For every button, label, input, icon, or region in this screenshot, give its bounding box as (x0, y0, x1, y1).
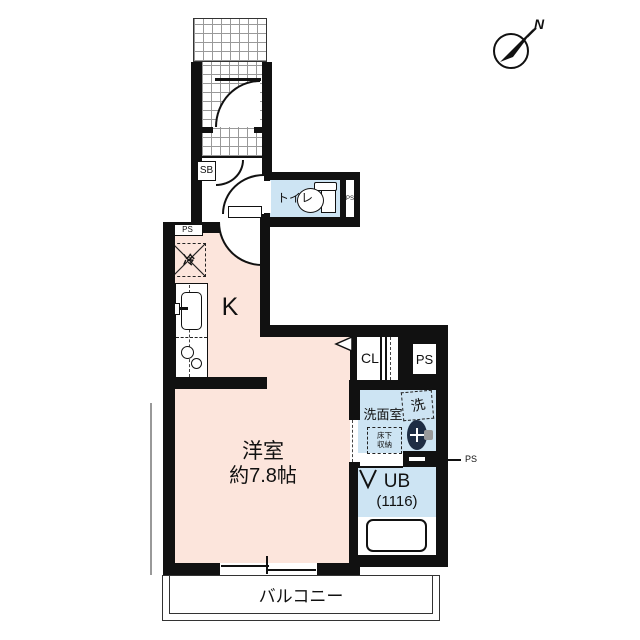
stove-burner-2 (191, 358, 202, 369)
washroom-top-wall (349, 380, 448, 390)
closet-block-top-wall (260, 325, 448, 337)
bath-size-label: (1116) (358, 492, 436, 510)
compass-north-label: N (531, 16, 547, 32)
shoe-box-label: SB (197, 163, 216, 179)
wash-basin-cross-h (410, 434, 424, 436)
bottom-wall-right (317, 563, 360, 575)
floor-storage-label-line1: 床下 (367, 431, 402, 440)
closet-door-swing-triangle-icon (334, 336, 354, 353)
stove-burner-1 (181, 346, 194, 359)
right-outer-wall (436, 325, 448, 567)
kitchen-right-wall (260, 217, 270, 337)
kitchen-label: K (215, 292, 245, 322)
washroom-sliding-door (352, 420, 354, 462)
eave-line (150, 403, 152, 575)
bathtub (366, 519, 427, 552)
toilet-ps-label: PS (342, 194, 358, 203)
bottom-wall-left (163, 563, 220, 575)
washroom-ps-shaft-slit (409, 457, 425, 461)
kitchen-room-divider-wall (163, 377, 267, 389)
balcony-label: バルコニー (180, 586, 422, 606)
bath-label: UB (358, 471, 436, 491)
bath-bottom-wall (349, 555, 448, 567)
entrance-door-stub-right (254, 127, 262, 133)
entrance-door-stub-left (202, 127, 213, 133)
sink-faucet-icon (179, 307, 188, 310)
ps-callout-line (448, 459, 461, 461)
closet-door-line-2 (385, 337, 387, 380)
left-outer-wall (163, 222, 175, 563)
entrance-door-leaf (215, 78, 261, 81)
closet-door-fold-line (390, 337, 391, 380)
pipe-space-label: PS (413, 345, 436, 373)
stove-divider-line (176, 337, 207, 338)
ps-callout-label: PS (461, 453, 481, 465)
main-room-size-label: 約7.8帖 (193, 464, 333, 488)
balcony-window-center-tick (266, 556, 268, 574)
wash-basin-faucet (424, 430, 433, 440)
closet-door-line-1 (380, 337, 382, 380)
balcony-window-pane-1 (221, 565, 269, 567)
floor-plan: PS トイレ SB PS 冷 K CL PS (0, 0, 640, 640)
main-room-label: 洋室 (193, 438, 333, 464)
kitchen-door-leaf (228, 206, 262, 218)
washroom-label: 洗面室 (356, 406, 410, 422)
entrance-left-wall (191, 62, 202, 222)
entrance-porch-tiles (193, 18, 267, 62)
balcony-window-pane-2 (266, 569, 316, 571)
refrigerator-label: 冷 (177, 249, 201, 271)
entrance-right-wall (262, 62, 272, 172)
kitchen-sink (181, 292, 202, 330)
floor-storage-label-line2: 収納 (367, 440, 402, 449)
toilet-label: トイレ (271, 190, 319, 205)
kitchen-ps-label: PS (172, 225, 203, 235)
